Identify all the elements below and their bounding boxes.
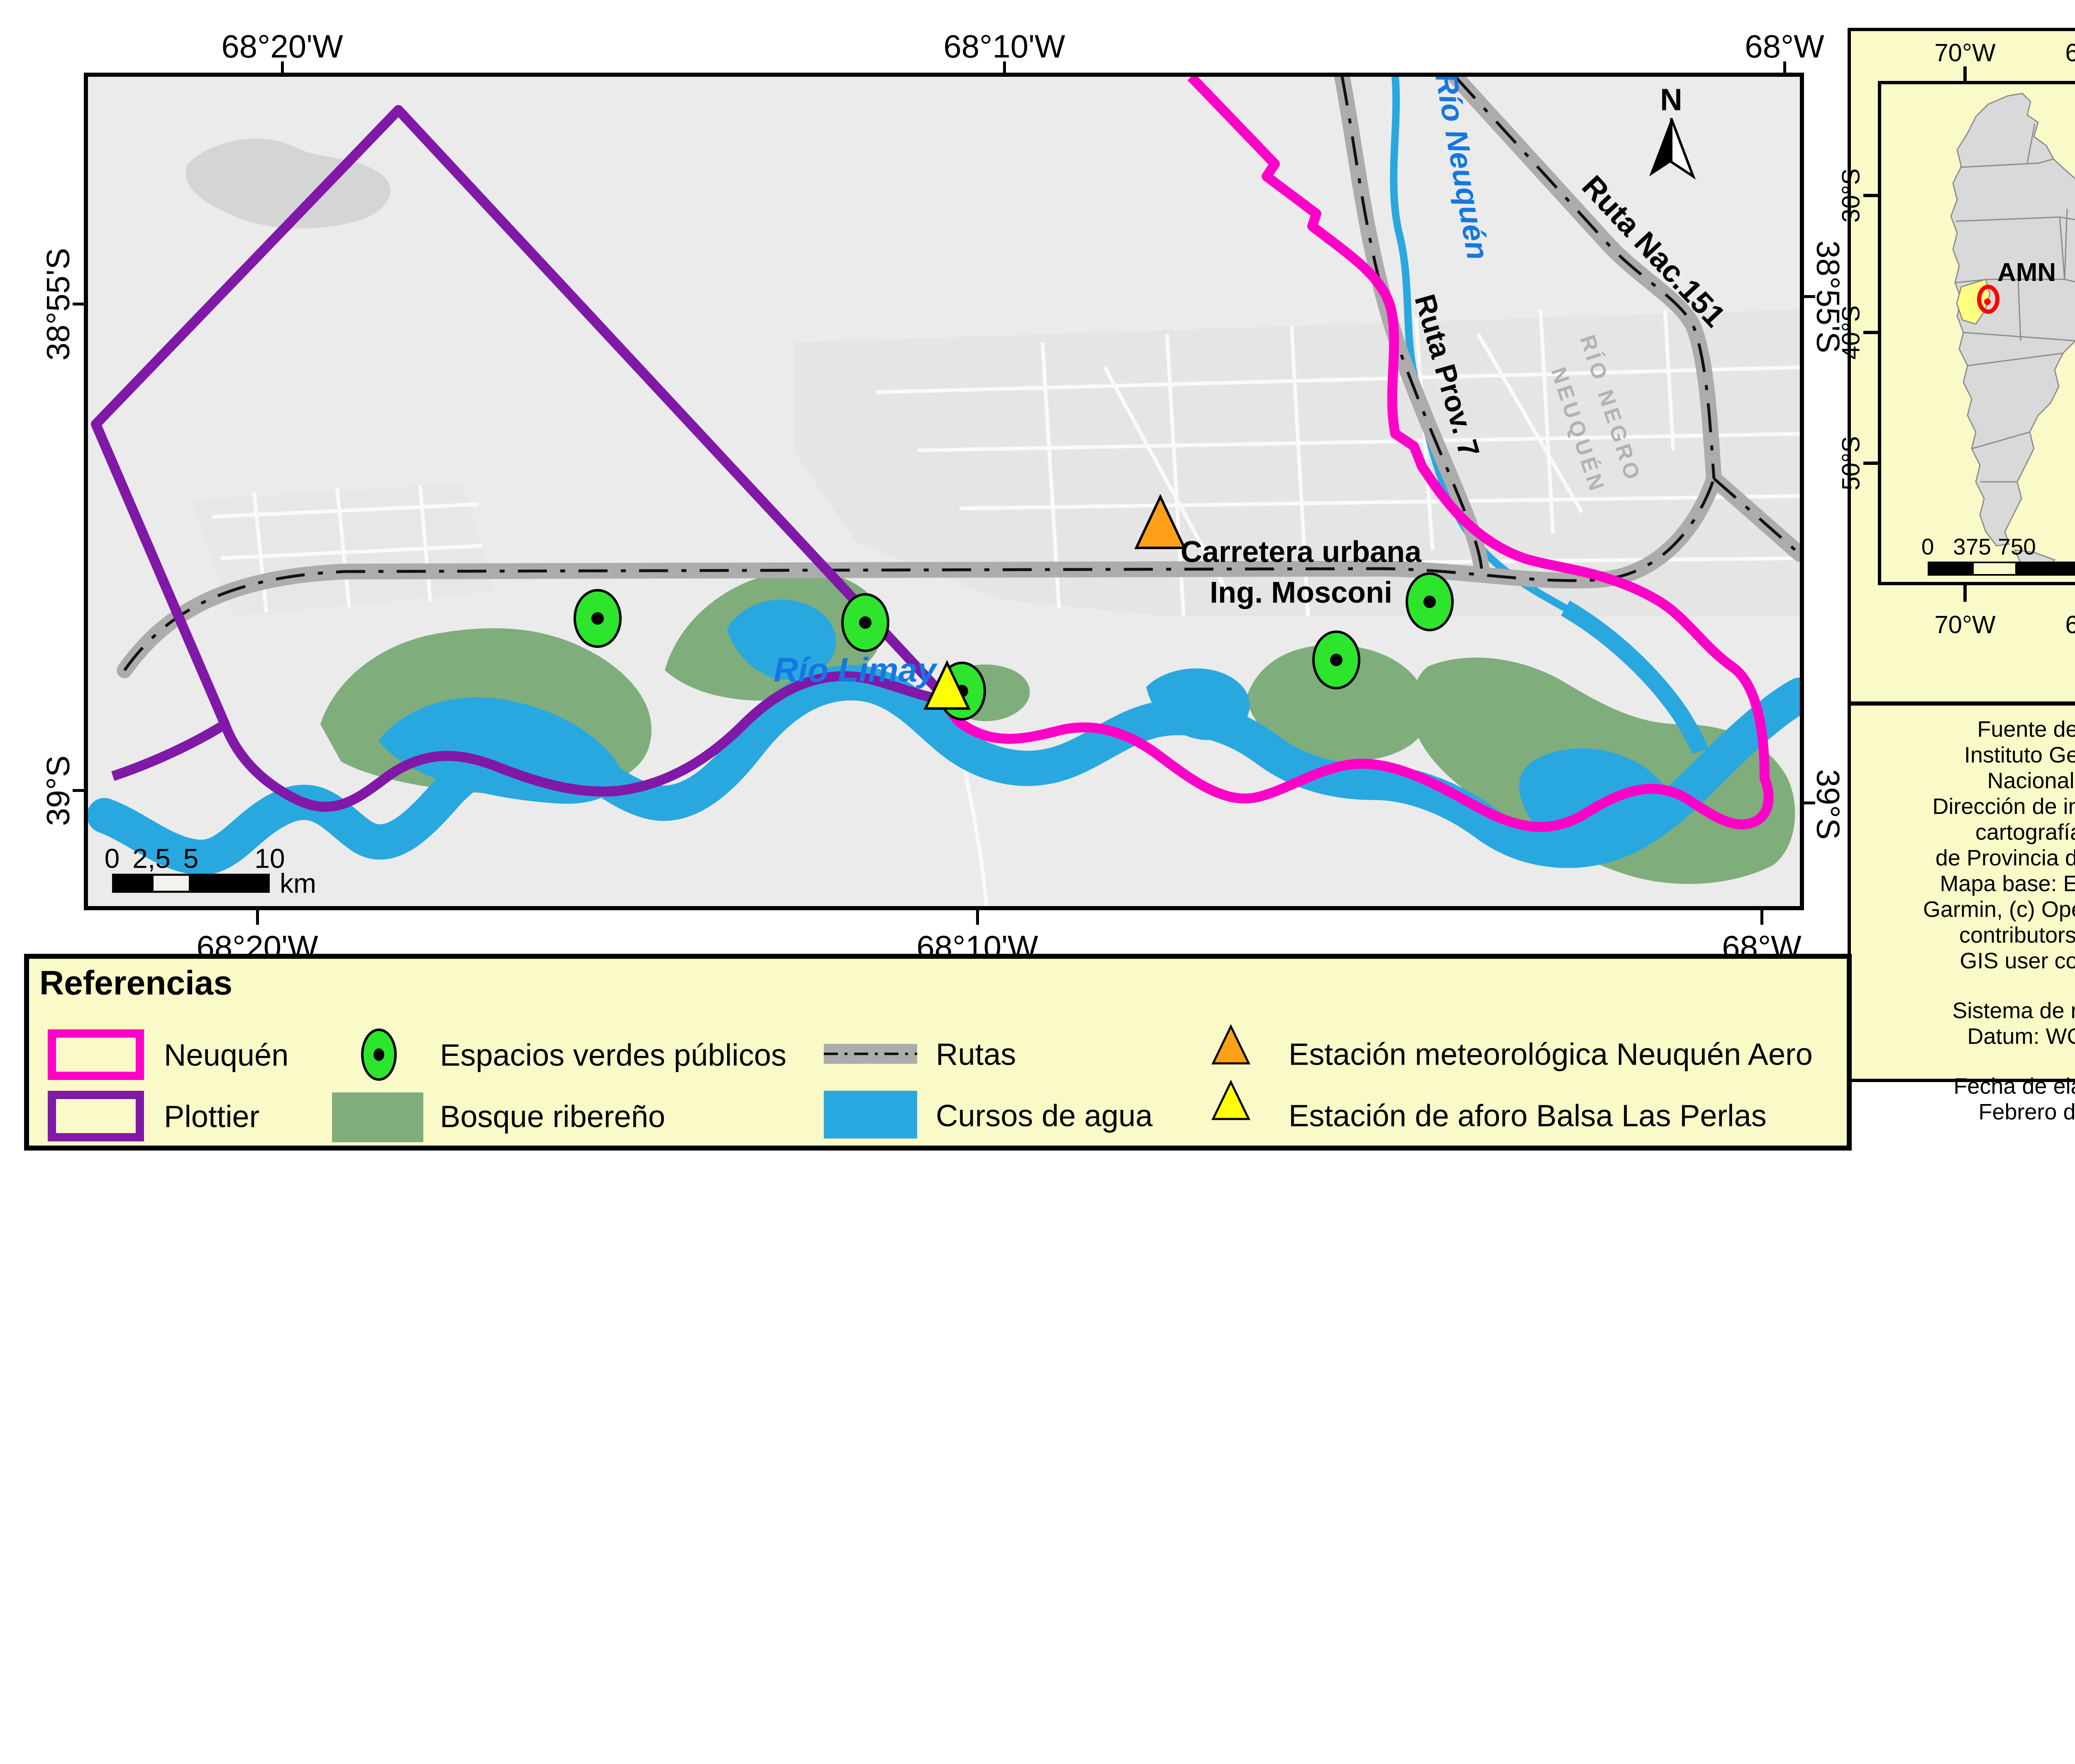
inset-axis-top-60w: 60°W — [2065, 39, 2075, 67]
legend-label-rutas: Rutas — [936, 1037, 1016, 1072]
scale-bar — [112, 874, 270, 893]
legend-label-aforo: Estación de aforo Balsa Las Perlas — [1289, 1098, 1767, 1134]
carretera-label-line1: Carretera urbana — [1181, 535, 1421, 569]
axis-right-39: 39°S — [1809, 769, 1847, 840]
axis-top-68-20: 68°20'W — [221, 28, 343, 66]
legend-label-meteo: Estación meteorológica Neuquén Aero — [1289, 1037, 1813, 1072]
inset-scale-bar — [1928, 562, 2075, 576]
inset-map-frame: AMN N 0 375 750 1.500 km — [1878, 81, 2075, 585]
inset-axis-top-70w: 70°W — [1934, 39, 1995, 67]
rio-limay-label: Río Limay — [774, 651, 936, 690]
legend-title: Referencias — [39, 964, 232, 1003]
scale-bar-unit: km — [280, 867, 316, 899]
north-arrow-label: N — [1660, 82, 1682, 117]
scale-bar-label-0: 0 — [105, 843, 120, 874]
axis-left-39: 39°S — [39, 755, 77, 826]
elaboration-date-block: Fecha de elaboraciónFebrero de 2021 — [1851, 1073, 2075, 1125]
tick-bottom-3 — [1760, 910, 1763, 925]
inset-axis-bottom-60w: 60°W — [2065, 611, 2075, 639]
main-map-canvas — [88, 77, 1800, 906]
legend-swatch-cursos — [824, 1091, 917, 1139]
map-layout-page: Río Limay Río Neuquén Ruta Nac.151 Ruta … — [0, 0, 2075, 1764]
tick-bottom-2 — [976, 910, 979, 925]
inset-scale-750: 750 — [1998, 533, 2036, 560]
legend-panel: Referencias Neuquén Plottier Espacios ve… — [24, 954, 1852, 1151]
legend-swatch-plottier — [48, 1091, 144, 1141]
legend-label-bosque: Bosque ribereño — [440, 1099, 665, 1134]
legend-label-espacios: Espacios verdes públicos — [440, 1038, 786, 1073]
scale-bar-label-25: 2,5 — [132, 843, 171, 874]
north-arrow-icon — [1649, 118, 1693, 176]
inset-axis-left-40s: 40°S — [1837, 305, 1865, 360]
tick-bottom-1 — [256, 910, 259, 925]
plottier-boundary-tail — [113, 724, 225, 776]
inset-scale-0: 0 — [1921, 533, 1934, 560]
axis-top-68-10: 68°10'W — [943, 28, 1065, 66]
inset-axis-bottom-70w: 70°W — [1934, 611, 1995, 639]
legend-label-plottier: Plottier — [164, 1099, 259, 1134]
amn-location-dot — [1984, 298, 1991, 305]
carretera-label-line2: Ing. Mosconi — [1210, 576, 1392, 610]
inset-map-panel: 70°W 60°W 70°W 60°W 30°S 40°S 50°S 30°S … — [1848, 28, 2075, 705]
legend-label-neuquen: Neuquén — [164, 1038, 288, 1073]
info-panel: Fuente de datos:Instituto Geográfico Nac… — [1848, 702, 2075, 1082]
main-map: Río Limay Río Neuquén Ruta Nac.151 Ruta … — [84, 73, 1804, 910]
inset-axis-left-30s: 30°S — [1837, 169, 1865, 223]
inset-axis-left-50s: 50°S — [1837, 436, 1865, 491]
inset-scale-375: 375 — [1953, 533, 1991, 560]
scale-bar-label-5: 5 — [183, 843, 199, 874]
legend-marker-meteo — [1211, 1024, 1251, 1066]
legend-swatch-bosque — [332, 1092, 423, 1142]
legend-marker-aforo — [1211, 1080, 1251, 1121]
legend-marker-espacios — [361, 1029, 397, 1081]
argentina-map — [1881, 84, 2075, 582]
axis-left-38-55: 38°55'S — [39, 248, 77, 361]
legend-swatch-neuquen — [48, 1029, 144, 1080]
reference-system-block: Sistema de referenciaDatum: WGS 1984 — [1851, 998, 2075, 1049]
axis-top-68: 68°W — [1745, 28, 1824, 66]
legend-swatch-rutas — [824, 1044, 917, 1064]
amn-label: AMN — [1997, 258, 2056, 287]
data-source-block: Fuente de datos:Instituto Geográfico Nac… — [1851, 716, 2075, 974]
legend-label-cursos: Cursos de agua — [936, 1098, 1152, 1134]
